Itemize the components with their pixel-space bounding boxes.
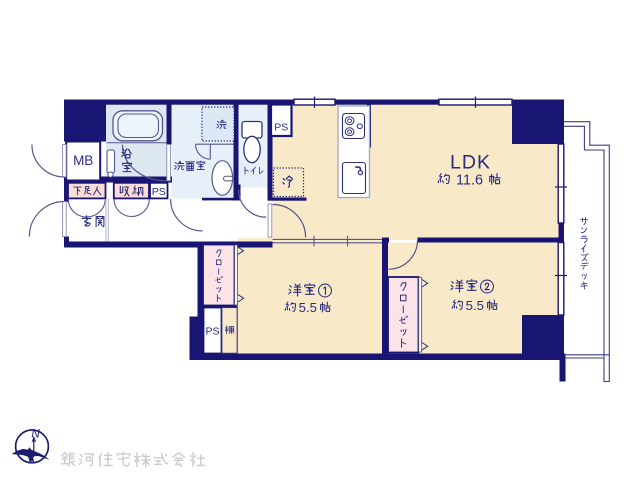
svg-text:5.5: 5.5 [299,300,317,315]
svg-text:5.5: 5.5 [466,298,484,313]
svg-text:PS: PS [205,326,219,338]
svg-text:11.6: 11.6 [456,172,483,188]
svg-text:MB: MB [73,153,93,168]
svg-text:LDK: LDK [450,152,491,174]
svg-text:PS: PS [274,122,288,134]
svg-text:PS: PS [152,186,166,198]
svg-text:N: N [31,429,40,441]
